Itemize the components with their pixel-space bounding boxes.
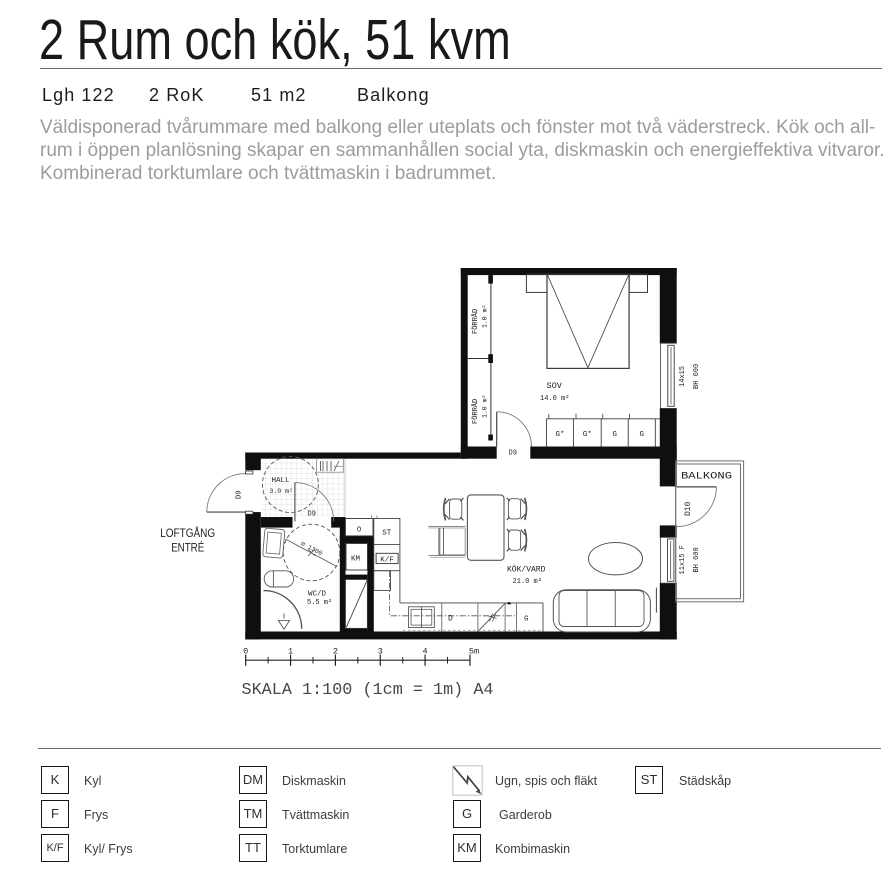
svg-text:SOV: SOV	[547, 381, 563, 391]
svg-text:BALKONG: BALKONG	[681, 471, 732, 483]
svg-text:FÖRRÅD: FÖRRÅD	[471, 399, 480, 424]
svg-text:5m: 5m	[469, 647, 479, 657]
svg-text:3: 3	[378, 647, 383, 657]
svg-text:14x15: 14x15	[679, 366, 687, 387]
svg-text:2: 2	[333, 647, 338, 657]
svg-text:ST: ST	[382, 530, 392, 538]
svg-text:D: D	[448, 615, 453, 624]
svg-text:G: G	[612, 431, 617, 439]
svg-text:1.0 m²: 1.0 m²	[482, 395, 489, 418]
svg-text:ENTRÉ: ENTRÉ	[171, 539, 204, 554]
svg-text:G*: G*	[555, 431, 564, 439]
svg-text:0: 0	[243, 647, 248, 657]
svg-text:G: G	[639, 431, 644, 439]
svg-text:K/F: K/F	[380, 557, 394, 565]
svg-text:D10: D10	[684, 501, 693, 516]
svg-text:3.0 m²: 3.0 m²	[270, 488, 293, 495]
svg-text:FÖRRÅD: FÖRRÅD	[471, 309, 480, 334]
svg-text:21.0 m²: 21.0 m²	[513, 578, 542, 586]
svg-text:BH 600: BH 600	[693, 547, 701, 572]
svg-text:HALL: HALL	[272, 477, 291, 485]
svg-text:1: 1	[288, 647, 293, 657]
svg-text:1.0 m²: 1.0 m²	[482, 305, 489, 328]
svg-text:14.0 m²: 14.0 m²	[540, 395, 569, 403]
svg-text:KÖK/VARD: KÖK/VARD	[507, 566, 546, 575]
svg-text:4: 4	[423, 647, 428, 657]
svg-text:SKALA 1:100 (1cm = 1m) A4: SKALA 1:100 (1cm = 1m) A4	[242, 680, 494, 699]
svg-text:O: O	[357, 527, 361, 535]
svg-text:KM: KM	[351, 556, 361, 564]
svg-text:WC/D: WC/D	[308, 591, 327, 599]
svg-text:5.5 m²: 5.5 m²	[307, 599, 332, 607]
svg-text:LOFTGÅNG: LOFTGÅNG	[160, 525, 215, 540]
svg-text:G: G	[524, 616, 529, 624]
svg-text:BH 600: BH 600	[693, 364, 701, 389]
svg-text:G*: G*	[583, 431, 592, 439]
svg-text:11x15 F: 11x15 F	[679, 545, 687, 574]
svg-text:D9: D9	[509, 450, 517, 458]
svg-text:D9: D9	[308, 510, 316, 518]
svg-text:D9: D9	[236, 491, 244, 499]
